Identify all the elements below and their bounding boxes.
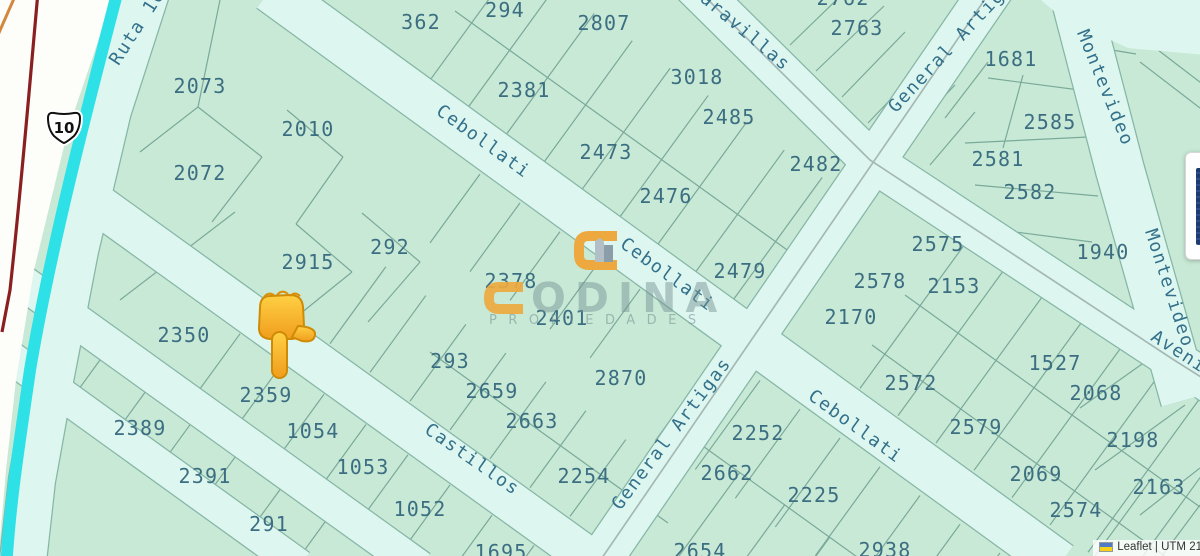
parcel-number: 1054 (287, 419, 340, 443)
parcel-number: 2662 (701, 461, 754, 485)
map-canvas[interactable]: 10Ruta 10CebollatiCebollatiCebollatiCast… (0, 0, 1200, 556)
panel-thumbnail (1196, 168, 1200, 245)
parcel-number: 2585 (1024, 110, 1077, 134)
parcel-number: 1681 (985, 47, 1038, 71)
parcel-number: 2389 (114, 416, 167, 440)
parcel-number: 2575 (912, 232, 965, 256)
parcel-number: 2574 (1050, 498, 1103, 522)
attribution-bar: Leaflet | UTM 21 (1093, 540, 1200, 556)
parcel-number: 291 (249, 512, 289, 536)
parcel-number: 2473 (580, 140, 633, 164)
parcel-number: 2069 (1010, 462, 1063, 486)
parcel-number: 2378 (485, 269, 538, 293)
map-viewport[interactable]: 10Ruta 10CebollatiCebollatiCebollatiCast… (0, 0, 1200, 556)
parcel-number: 2163 (1133, 475, 1186, 499)
parcel-number: 293 (430, 349, 470, 373)
parcel-number: 2659 (466, 379, 519, 403)
parcel-number: 2762 (817, 0, 870, 10)
parcel-number: 2072 (174, 161, 227, 185)
ukraine-flag-icon (1099, 542, 1113, 552)
location-pointer-icon[interactable] (246, 288, 320, 384)
parcel-number: 1053 (337, 455, 390, 479)
parcel-number: 2170 (825, 305, 878, 329)
leaflet-attribution-link[interactable]: Leaflet | UTM 21 (1117, 541, 1200, 553)
route-shield-number: 10 (54, 119, 75, 137)
parcel-number: 2153 (928, 274, 981, 298)
parcel-number: 362 (401, 10, 441, 34)
parcel-number: 2010 (282, 117, 335, 141)
parcel-number: 294 (485, 0, 525, 22)
parcel-number: 2068 (1070, 381, 1123, 405)
parcel-number: 2654 (674, 539, 727, 556)
map-side-panel[interactable] (1185, 152, 1200, 260)
parcel-number: 2198 (1107, 428, 1160, 452)
parcel-number: 1940 (1077, 240, 1130, 264)
parcel-number: 2581 (972, 147, 1025, 171)
parcel-number: 2401 (536, 306, 589, 330)
parcel-number: 2485 (703, 105, 756, 129)
parcel-number: 2350 (158, 323, 211, 347)
parcel-number: 2807 (578, 11, 631, 35)
parcel-number: 2476 (640, 184, 693, 208)
parcel-number: 2225 (788, 483, 841, 507)
parcel-number: 2582 (1004, 180, 1057, 204)
parcel-number: 2479 (714, 259, 767, 283)
parcel-number: 3018 (671, 65, 724, 89)
parcel-number: 1695 (475, 540, 528, 556)
parcel-number: 2254 (558, 464, 611, 488)
route-10-shield: 10 (48, 113, 80, 143)
parcel-number: 2915 (282, 250, 335, 274)
parcel-number: 2938 (859, 538, 912, 556)
parcel-number: 2482 (790, 152, 843, 176)
parcel-number: 2572 (885, 371, 938, 395)
parcel-number: 2663 (506, 409, 559, 433)
parcel-number: 2073 (174, 74, 227, 98)
parcel-number: 2391 (179, 464, 232, 488)
parcel-number: 2359 (240, 383, 293, 407)
parcel-number: 2763 (831, 16, 884, 40)
parcel-number: 2381 (498, 78, 551, 102)
parcel-number: 292 (370, 235, 410, 259)
parcel-number: 2578 (854, 269, 907, 293)
parcel-number: 2870 (595, 366, 648, 390)
parcel-number: 1527 (1029, 351, 1082, 375)
parcel-number: 1052 (394, 497, 447, 521)
parcel-number: 2252 (732, 421, 785, 445)
parcel-number: 2579 (950, 415, 1003, 439)
